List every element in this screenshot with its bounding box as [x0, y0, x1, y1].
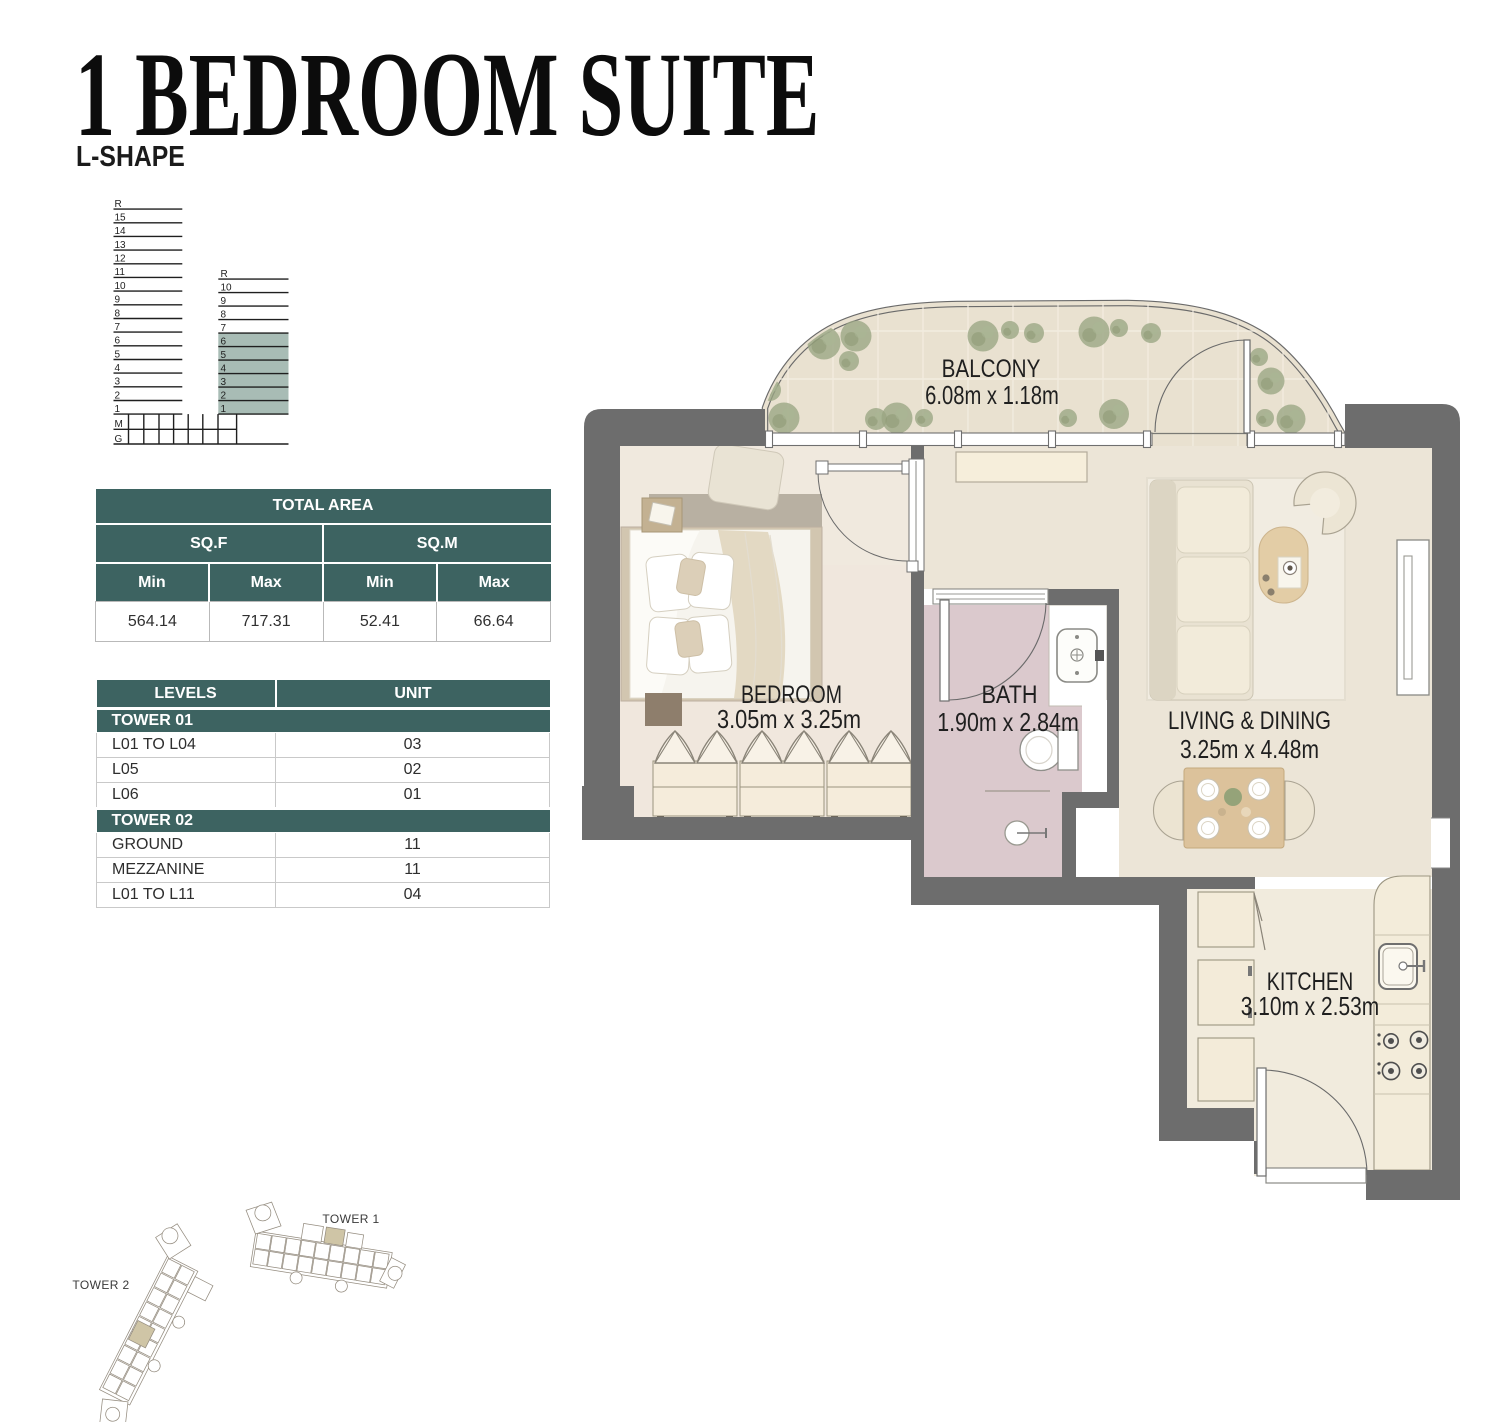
svg-text:4: 4 — [221, 363, 227, 374]
svg-text:13: 13 — [115, 240, 127, 251]
svg-text:TOWER 1: TOWER 1 — [322, 1212, 379, 1226]
svg-text:12: 12 — [115, 254, 127, 265]
svg-text:BALCONY: BALCONY — [942, 355, 1041, 383]
svg-text:7: 7 — [221, 323, 227, 334]
svg-text:LIVING & DINING: LIVING & DINING — [1168, 707, 1331, 735]
svg-text:3: 3 — [221, 377, 227, 388]
svg-text:10: 10 — [115, 281, 127, 292]
svg-text:6.08m x 1.18m: 6.08m x 1.18m — [925, 380, 1059, 410]
svg-text:6: 6 — [221, 336, 227, 347]
svg-text:1: 1 — [221, 404, 227, 415]
svg-text:9: 9 — [221, 296, 227, 307]
svg-text:5: 5 — [115, 349, 121, 360]
svg-text:9: 9 — [115, 295, 121, 306]
svg-text:R: R — [221, 269, 228, 280]
svg-text:7: 7 — [115, 322, 121, 333]
svg-text:14: 14 — [115, 226, 127, 237]
svg-text:M: M — [115, 419, 123, 430]
svg-text:8: 8 — [221, 309, 227, 320]
svg-text:3.10m x 2.53m: 3.10m x 2.53m — [1241, 991, 1379, 1021]
svg-text:2: 2 — [115, 390, 121, 401]
svg-text:1.90m x 2.84m: 1.90m x 2.84m — [937, 707, 1079, 737]
svg-text:3.25m x 4.48m: 3.25m x 4.48m — [1180, 734, 1319, 764]
svg-text:10: 10 — [221, 282, 233, 293]
svg-text:6: 6 — [115, 336, 121, 347]
svg-text:11: 11 — [115, 267, 126, 278]
svg-text:1: 1 — [115, 404, 121, 415]
svg-text:3: 3 — [115, 377, 121, 388]
svg-text:R: R — [115, 199, 122, 210]
svg-text:3.05m x 3.25m: 3.05m x 3.25m — [717, 704, 861, 734]
svg-text:5: 5 — [221, 350, 227, 361]
svg-text:G: G — [115, 434, 123, 445]
svg-text:BATH: BATH — [982, 681, 1038, 709]
svg-text:8: 8 — [115, 308, 121, 319]
svg-text:TOWER 2: TOWER 2 — [72, 1278, 129, 1292]
svg-text:4: 4 — [115, 363, 121, 374]
svg-text:15: 15 — [115, 213, 127, 224]
svg-text:2: 2 — [221, 390, 227, 401]
